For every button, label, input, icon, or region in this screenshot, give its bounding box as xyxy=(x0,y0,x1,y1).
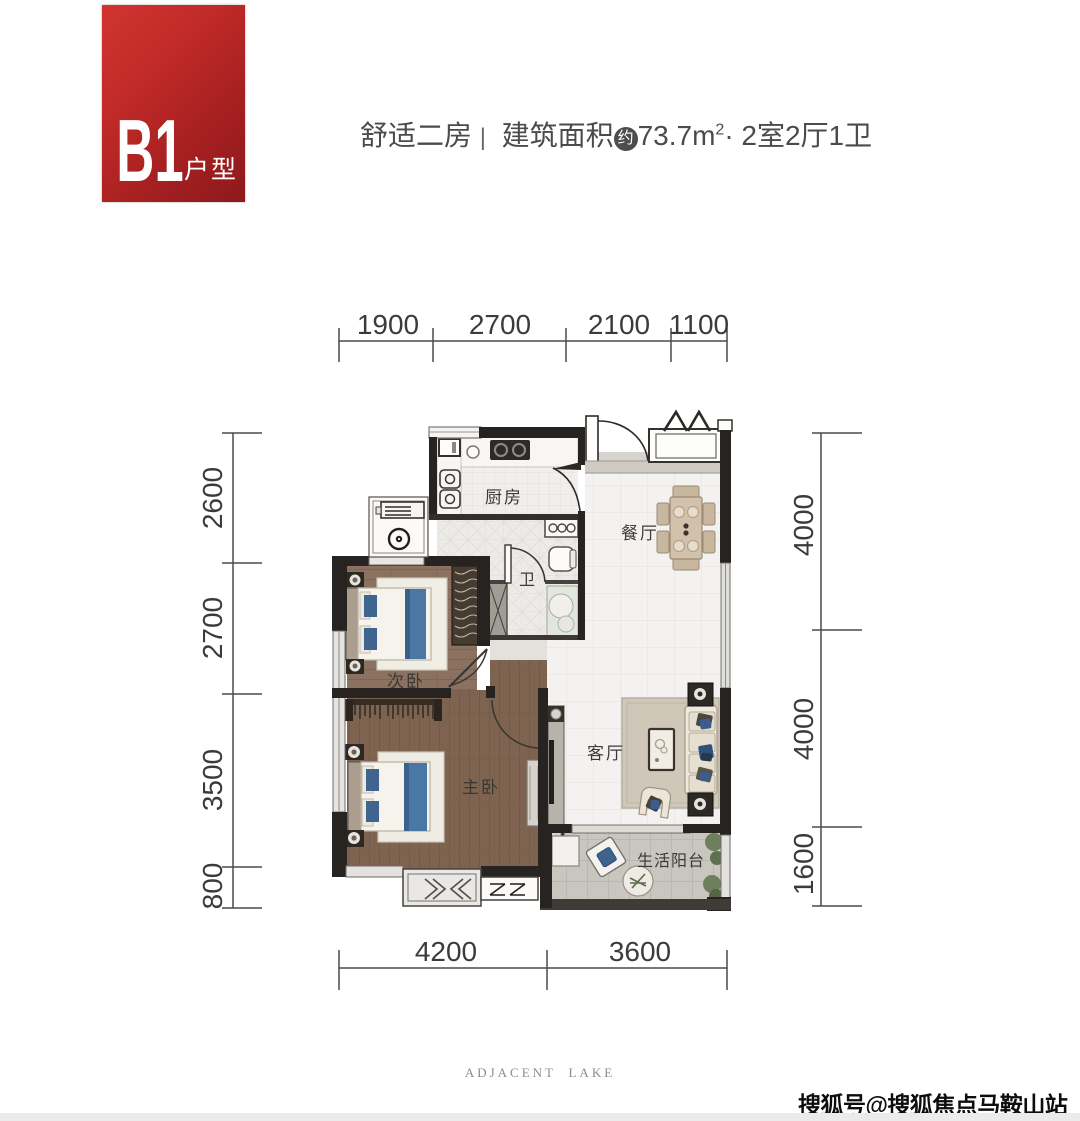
svg-text:2700: 2700 xyxy=(469,309,531,340)
svg-text:2600: 2600 xyxy=(197,467,228,529)
svg-text:餐厅: 餐厅 xyxy=(621,524,659,543)
svg-text:4000: 4000 xyxy=(788,698,819,760)
svg-text:生活阳台: 生活阳台 xyxy=(637,852,705,870)
svg-text:4000: 4000 xyxy=(788,494,819,556)
svg-text:800: 800 xyxy=(197,863,228,910)
svg-text:2700: 2700 xyxy=(197,597,228,659)
svg-text:4200: 4200 xyxy=(415,936,477,967)
svg-text:2100: 2100 xyxy=(588,309,650,340)
svg-text:1900: 1900 xyxy=(357,309,419,340)
svg-text:厨房: 厨房 xyxy=(485,488,523,507)
svg-text:客厅: 客厅 xyxy=(587,744,625,763)
svg-text:1100: 1100 xyxy=(669,309,729,340)
svg-text:3600: 3600 xyxy=(609,936,671,967)
svg-text:主卧: 主卧 xyxy=(462,778,500,797)
svg-text:1600: 1600 xyxy=(788,833,819,895)
svg-text:卫: 卫 xyxy=(519,572,535,589)
svg-text:3500: 3500 xyxy=(197,749,228,811)
